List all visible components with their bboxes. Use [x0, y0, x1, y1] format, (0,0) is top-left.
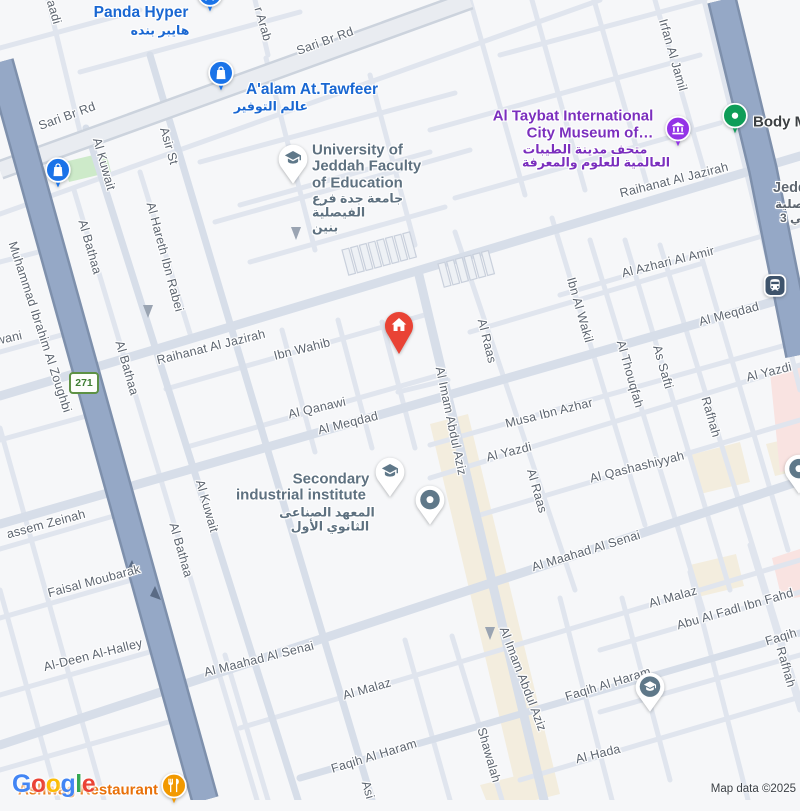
poi-label[interactable]: بنين [312, 220, 338, 235]
shopping-bag-icon[interactable] [45, 157, 72, 195]
poi-label[interactable]: الثانوي الأول [291, 519, 369, 534]
graduation-cap-pin-dark-icon[interactable] [635, 672, 666, 718]
poi-label[interactable]: الفيصلية [312, 205, 365, 220]
dot-pin-icon[interactable] [415, 485, 446, 531]
poi-label[interactable]: هايبر بنده [131, 23, 190, 38]
shopping-bag-icon[interactable] [208, 60, 235, 98]
poi-label[interactable]: industrial institute [236, 487, 366, 504]
route-271-shield: 271 [69, 372, 99, 394]
poi-label[interactable]: العالمية للعلوم والمعرفة [522, 155, 670, 170]
graduation-cap-pin-icon[interactable] [278, 144, 309, 190]
google-logo-letter: e [82, 770, 95, 798]
shopping-cart-icon[interactable] [197, 0, 224, 19]
map-data-attribution: Map data ©2025 [711, 783, 796, 795]
poi-label[interactable]: حي 3 [780, 211, 800, 225]
restaurant-icon[interactable] [161, 773, 188, 811]
graduation-cap-pin-icon[interactable] [375, 457, 406, 503]
poi-label[interactable]: عالم التوفير [234, 99, 308, 114]
museum-icon[interactable] [665, 116, 692, 154]
google-logo-letter: o [46, 770, 61, 798]
poi-label[interactable]: Jeddah Faculty [312, 158, 421, 175]
map-canvas[interactable]: Sari Br RdSari Br RdRaihanat Al JazirahR… [0, 0, 800, 800]
poi-label[interactable]: المعهد الصناعى [279, 505, 375, 520]
poi-label[interactable]: الفيصلية [775, 197, 800, 211]
google-logo-letter: G [12, 770, 31, 798]
google-logo[interactable]: Google [12, 770, 95, 799]
poi-label[interactable]: A'alam At.Tawfeer [246, 81, 378, 99]
google-logo-letter: g [61, 770, 76, 798]
poi-label[interactable]: Body M [753, 114, 800, 131]
fitness-dot-icon[interactable] [722, 103, 749, 141]
poi-label[interactable]: University of [312, 142, 403, 159]
dot-pin-icon[interactable] [784, 454, 800, 500]
poi-label[interactable]: Panda Hyper [94, 4, 189, 22]
poi-label[interactable]: Secondary [293, 471, 370, 488]
poi-label[interactable]: of Education [312, 175, 403, 192]
house-pin-icon[interactable] [384, 311, 414, 360]
poi-label[interactable]: City Museum of… [527, 125, 654, 142]
poi-label[interactable]: جامعة جدة فرع [312, 191, 403, 206]
google-logo-letter: o [31, 770, 46, 798]
poi-label[interactable]: Jedda [773, 180, 800, 196]
poi-label[interactable]: Al Taybat International [493, 108, 654, 125]
transit-icon[interactable] [764, 274, 787, 302]
